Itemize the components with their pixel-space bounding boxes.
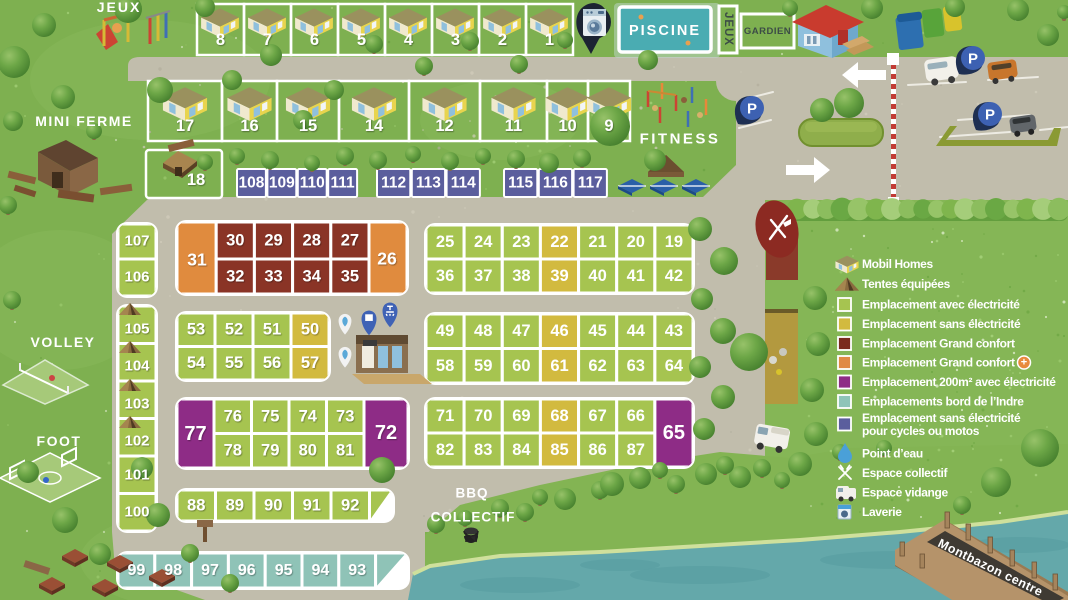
svg-text:16: 16 <box>240 117 258 135</box>
svg-text:89: 89 <box>226 497 244 515</box>
svg-text:108: 108 <box>238 175 264 192</box>
svg-text:JEUX: JEUX <box>97 0 142 15</box>
svg-text:99: 99 <box>128 562 146 579</box>
svg-text:48: 48 <box>474 322 492 340</box>
svg-text:20: 20 <box>627 233 645 251</box>
svg-text:53: 53 <box>187 321 205 339</box>
svg-text:72: 72 <box>375 422 397 444</box>
svg-text:Emplacement Grand confort: Emplacement Grand confort <box>862 337 1015 351</box>
svg-text:77: 77 <box>184 423 206 445</box>
svg-text:31: 31 <box>187 250 207 270</box>
svg-text:63: 63 <box>627 357 645 375</box>
svg-text:30: 30 <box>226 232 244 250</box>
svg-text:+: + <box>1021 357 1027 369</box>
svg-text:44: 44 <box>627 322 646 340</box>
svg-text:9: 9 <box>604 117 613 135</box>
svg-text:79: 79 <box>261 442 279 460</box>
svg-text:117: 117 <box>578 175 603 192</box>
svg-text:JEUX: JEUX <box>722 12 734 46</box>
svg-text:104: 104 <box>124 358 150 375</box>
svg-text:47: 47 <box>512 322 530 340</box>
svg-text:84: 84 <box>512 441 531 459</box>
svg-text:103: 103 <box>124 395 149 412</box>
svg-text:88: 88 <box>187 497 205 515</box>
svg-text:85: 85 <box>550 441 568 459</box>
svg-text:P: P <box>985 107 995 124</box>
svg-text:Point d’eau: Point d’eau <box>862 447 923 461</box>
svg-text:12: 12 <box>435 117 453 135</box>
svg-text:67: 67 <box>588 407 606 425</box>
svg-text:56: 56 <box>263 354 281 372</box>
svg-text:83: 83 <box>474 441 492 459</box>
svg-text:50: 50 <box>301 321 319 339</box>
svg-text:3: 3 <box>451 31 460 49</box>
svg-text:109: 109 <box>269 175 295 192</box>
svg-text:65: 65 <box>663 422 685 444</box>
svg-text:82: 82 <box>436 441 454 459</box>
svg-text:39: 39 <box>550 267 568 285</box>
svg-text:45: 45 <box>588 322 606 340</box>
svg-text:105: 105 <box>124 320 149 337</box>
svg-text:GARDIEN: GARDIEN <box>744 26 791 37</box>
svg-text:29: 29 <box>264 232 282 250</box>
svg-text:38: 38 <box>512 267 530 285</box>
svg-text:Laverie: Laverie <box>862 505 902 519</box>
svg-text:70: 70 <box>474 407 492 425</box>
svg-text:46: 46 <box>550 322 568 340</box>
svg-text:COLLECTIF: COLLECTIF <box>431 510 516 525</box>
svg-text:28: 28 <box>303 232 321 250</box>
svg-text:6: 6 <box>310 31 319 49</box>
svg-text:4: 4 <box>404 31 414 49</box>
svg-text:69: 69 <box>512 407 530 425</box>
svg-text:86: 86 <box>588 441 606 459</box>
svg-text:Emplacement Grand confort: Emplacement Grand confort <box>862 356 1015 370</box>
svg-text:54: 54 <box>187 354 206 372</box>
svg-text:19: 19 <box>665 233 683 251</box>
svg-text:11: 11 <box>505 117 522 135</box>
svg-text:59: 59 <box>474 357 492 375</box>
svg-text:41: 41 <box>627 267 645 285</box>
svg-text:55: 55 <box>225 354 243 372</box>
svg-text:73: 73 <box>336 408 354 426</box>
svg-text:27: 27 <box>341 232 359 250</box>
svg-text:92: 92 <box>341 497 359 515</box>
svg-text:43: 43 <box>665 322 683 340</box>
svg-text:78: 78 <box>224 442 242 460</box>
svg-text:90: 90 <box>264 497 282 515</box>
svg-text:10: 10 <box>558 117 576 135</box>
svg-text:111: 111 <box>331 175 356 192</box>
svg-text:Emplacement sans électricité: Emplacement sans électricité <box>862 411 1021 425</box>
svg-text:Mobil Homes: Mobil Homes <box>862 257 933 271</box>
svg-text:98: 98 <box>164 562 182 579</box>
svg-text:7: 7 <box>263 31 272 49</box>
svg-text:36: 36 <box>436 267 454 285</box>
svg-text:25: 25 <box>436 233 454 251</box>
svg-text:Tentes équipées: Tentes équipées <box>862 277 951 291</box>
svg-text:15: 15 <box>299 117 317 135</box>
svg-text:57: 57 <box>301 354 319 372</box>
svg-text:112: 112 <box>381 175 406 192</box>
svg-text:80: 80 <box>299 442 317 460</box>
svg-text:32: 32 <box>226 268 244 286</box>
svg-text:71: 71 <box>436 407 454 425</box>
svg-text:51: 51 <box>263 321 281 339</box>
svg-text:33: 33 <box>264 268 282 286</box>
svg-text:114: 114 <box>451 175 476 192</box>
svg-text:Espace vidange: Espace vidange <box>862 486 948 500</box>
svg-text:97: 97 <box>201 562 219 579</box>
svg-text:22: 22 <box>550 233 568 251</box>
svg-text:VOLLEY: VOLLEY <box>30 334 95 350</box>
svg-text:34: 34 <box>303 268 322 286</box>
svg-text:26: 26 <box>377 249 397 269</box>
svg-text:5: 5 <box>357 31 366 49</box>
svg-text:96: 96 <box>238 562 256 579</box>
svg-text:24: 24 <box>474 233 493 251</box>
svg-text:106: 106 <box>124 269 149 286</box>
svg-text:68: 68 <box>550 407 568 425</box>
svg-text:62: 62 <box>588 357 606 375</box>
svg-text:75: 75 <box>261 408 279 426</box>
svg-text:P: P <box>747 101 757 118</box>
svg-text:95: 95 <box>275 562 293 579</box>
svg-text:58: 58 <box>436 357 454 375</box>
svg-text:1: 1 <box>545 31 554 49</box>
svg-text:18: 18 <box>187 171 205 189</box>
svg-text:40: 40 <box>588 267 606 285</box>
svg-text:17: 17 <box>176 117 194 135</box>
svg-text:113: 113 <box>416 175 441 192</box>
svg-text:23: 23 <box>512 233 530 251</box>
svg-text:61: 61 <box>550 357 568 375</box>
svg-text:37: 37 <box>474 267 492 285</box>
svg-text:8: 8 <box>216 31 225 49</box>
svg-text:76: 76 <box>224 408 242 426</box>
svg-text:93: 93 <box>348 562 366 579</box>
svg-text:107: 107 <box>124 233 149 250</box>
svg-text:Emplacements bord de l’Indre: Emplacements bord de l’Indre <box>862 395 1024 409</box>
svg-text:Espace collectif: Espace collectif <box>862 466 948 480</box>
svg-text:94: 94 <box>312 562 330 579</box>
svg-text:42: 42 <box>665 267 683 285</box>
svg-text:35: 35 <box>341 268 359 286</box>
svg-text:60: 60 <box>512 357 530 375</box>
svg-text:2: 2 <box>498 31 507 49</box>
svg-text:87: 87 <box>627 441 645 459</box>
svg-text:110: 110 <box>300 175 325 192</box>
svg-text:81: 81 <box>336 442 354 460</box>
svg-text:21: 21 <box>588 233 606 251</box>
svg-text:64: 64 <box>665 357 684 375</box>
svg-text:49: 49 <box>436 322 454 340</box>
svg-text:FOOT: FOOT <box>37 433 82 449</box>
svg-text:PISCINE: PISCINE <box>629 23 701 39</box>
svg-text:FITNESS: FITNESS <box>640 131 721 148</box>
svg-text:14: 14 <box>365 117 384 135</box>
svg-text:Emplacement 200m² avec électri: Emplacement 200m² avec électricité <box>862 375 1056 389</box>
svg-text:115: 115 <box>508 175 533 192</box>
svg-text:66: 66 <box>627 407 645 425</box>
svg-text:116: 116 <box>543 175 568 192</box>
svg-text:BBQ: BBQ <box>456 486 489 501</box>
svg-text:MINI FERME: MINI FERME <box>35 113 132 129</box>
svg-text:Emplacement sans électricité: Emplacement sans électricité <box>862 317 1021 331</box>
svg-text:pour cycles ou motos: pour cycles ou motos <box>862 424 980 438</box>
svg-text:Emplacement avec électricité: Emplacement avec électricité <box>862 298 1020 312</box>
svg-text:52: 52 <box>225 321 243 339</box>
svg-text:100: 100 <box>124 504 149 521</box>
svg-text:74: 74 <box>299 408 318 426</box>
svg-text:P: P <box>968 51 978 68</box>
svg-text:101: 101 <box>124 466 149 483</box>
svg-text:102: 102 <box>124 433 149 450</box>
svg-text:91: 91 <box>303 497 321 515</box>
